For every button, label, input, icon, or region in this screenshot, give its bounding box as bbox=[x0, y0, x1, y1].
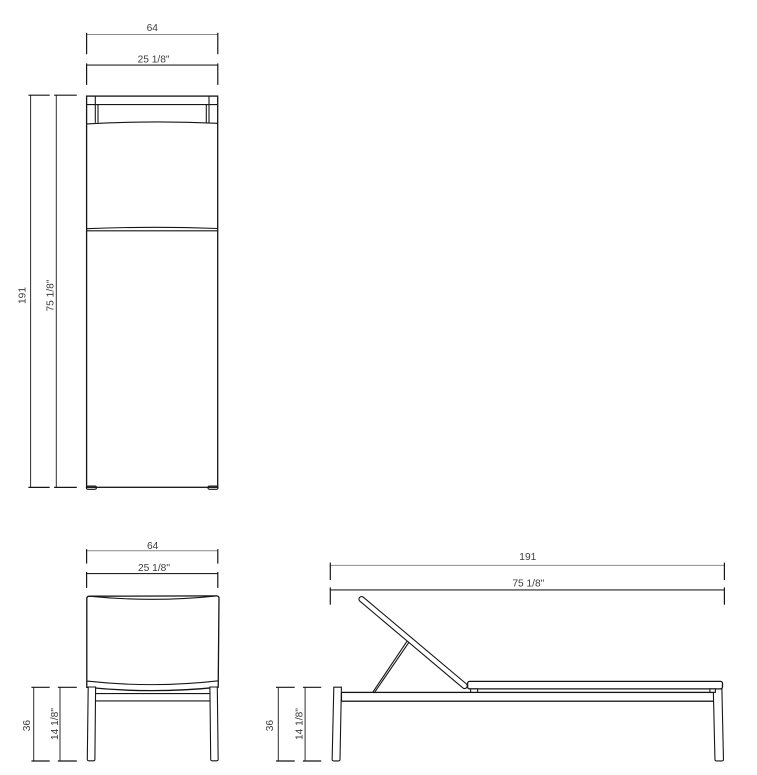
svg-text:14 1/8": 14 1/8" bbox=[50, 708, 61, 740]
svg-text:64: 64 bbox=[147, 541, 159, 552]
svg-text:25 1/8": 25 1/8" bbox=[138, 55, 170, 66]
svg-text:75 1/8": 75 1/8" bbox=[512, 579, 544, 590]
svg-text:191: 191 bbox=[519, 552, 536, 563]
svg-text:14 1/8": 14 1/8" bbox=[294, 708, 305, 740]
svg-text:191: 191 bbox=[17, 287, 28, 304]
svg-text:64: 64 bbox=[147, 23, 159, 34]
svg-text:75 1/8": 75 1/8" bbox=[45, 279, 56, 311]
svg-text:25 1/8": 25 1/8" bbox=[138, 563, 170, 574]
svg-text:36: 36 bbox=[22, 720, 33, 732]
svg-text:36: 36 bbox=[265, 720, 276, 732]
